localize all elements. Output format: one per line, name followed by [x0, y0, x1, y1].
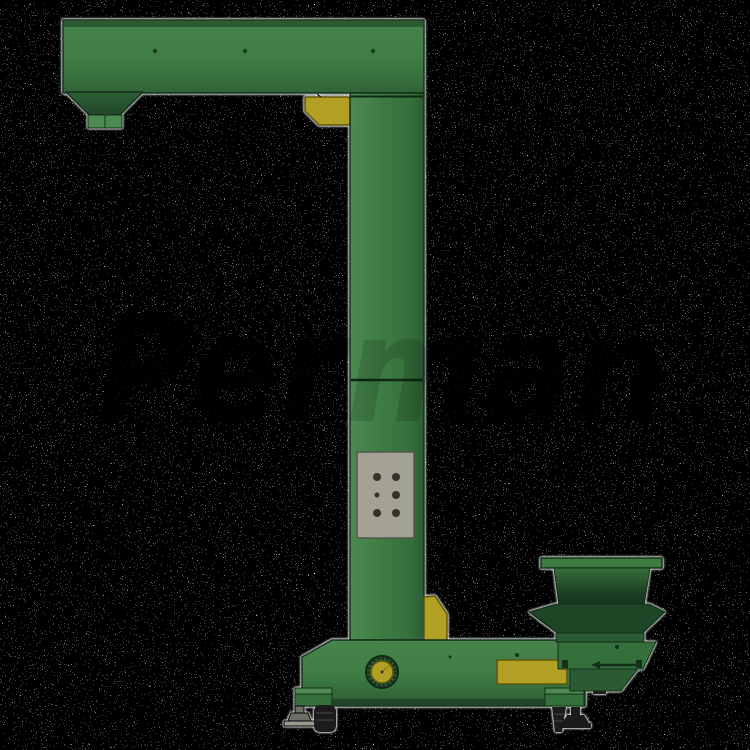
- left-leveling-foot-stem: [295, 706, 304, 713]
- base-yellow-stripe: [497, 660, 567, 684]
- panel-hole: [392, 509, 400, 517]
- base-bolt-dot: [515, 653, 519, 657]
- panel-hole: [392, 473, 400, 481]
- left-foot-plate: [284, 721, 315, 726]
- hopper-outlet-left: [88, 115, 105, 128]
- left-step-block-top: [295, 688, 332, 694]
- hopper-outlet-right: [105, 115, 122, 128]
- feeder-top-bowl: [554, 568, 650, 606]
- top-arm-edge-band: [64, 21, 423, 27]
- left-caster-wheel: [314, 705, 336, 732]
- access-panel: [357, 452, 414, 538]
- watermark-text-front: Perman: [97, 284, 667, 456]
- hub-center-dot: [381, 671, 384, 674]
- feeder-top-tray-rim: [541, 558, 662, 568]
- feeder-tray-bar: [556, 633, 644, 642]
- feeder-clamp: [562, 660, 568, 668]
- arm-bolt-dot: [153, 49, 157, 53]
- panel-hole: [373, 509, 381, 517]
- left-step-block: [295, 694, 332, 706]
- base-bolt-dot: [449, 656, 452, 659]
- panel-hole: [373, 473, 381, 481]
- right-step-block: [545, 694, 584, 706]
- right-leveling-foot-stem: [571, 707, 580, 716]
- feeder-bolt-dot: [615, 645, 619, 649]
- arm-bolt-dot: [371, 49, 375, 53]
- right-foot-plate: [560, 723, 591, 728]
- panel-hole: [375, 493, 380, 498]
- product-image: Perman: [0, 0, 750, 750]
- left-leveling-foot: [288, 713, 311, 721]
- base-bottom-band: [303, 699, 584, 705]
- panel-hole: [392, 491, 400, 499]
- arm-bolt-dot: [243, 49, 247, 53]
- elevator-top-arm: [63, 20, 424, 93]
- elevator-render-canvas: Perman: [0, 0, 750, 750]
